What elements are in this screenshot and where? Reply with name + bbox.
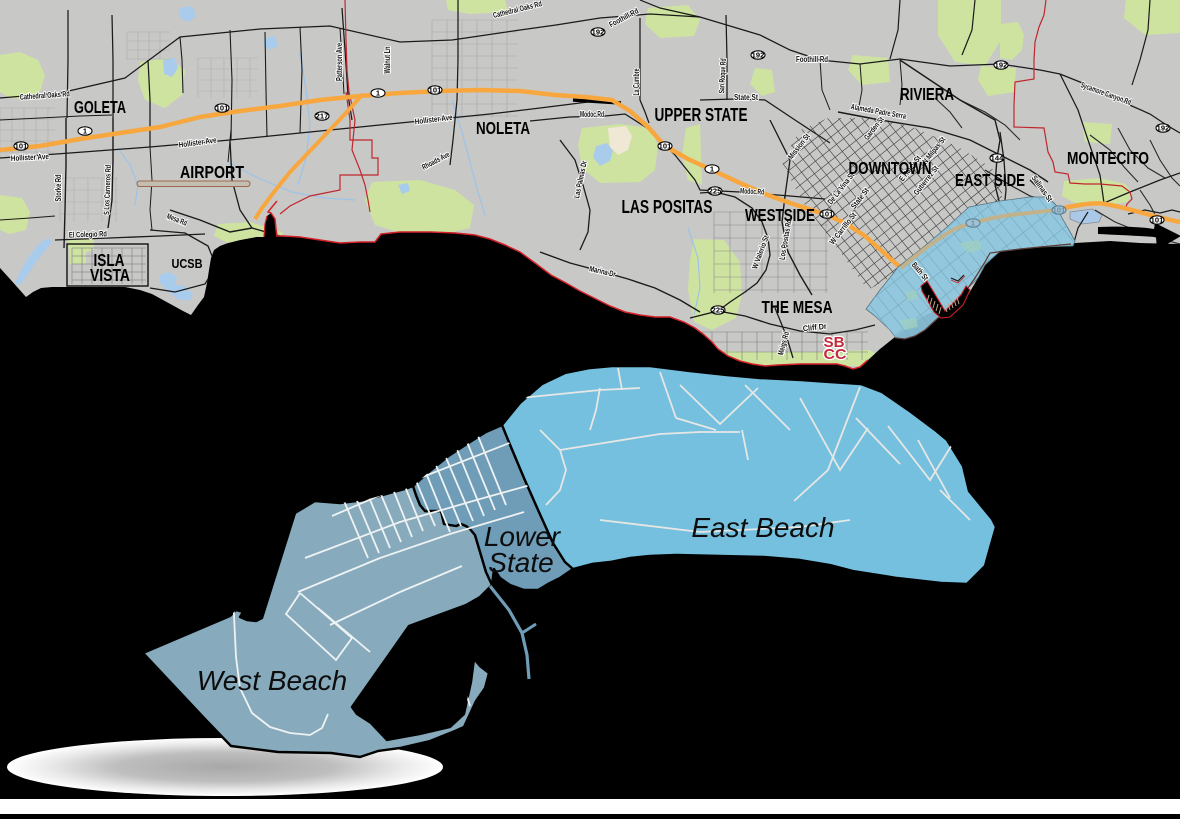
svg-text:192: 192 — [592, 30, 605, 37]
svg-text:101: 101 — [659, 144, 672, 151]
svg-text:WESTSIDE: WESTSIDE — [745, 205, 815, 225]
svg-text:1: 1 — [376, 91, 380, 98]
svg-text:La Cumbre: La Cumbre — [632, 68, 641, 95]
svg-text:THE MESA: THE MESA — [762, 297, 833, 317]
svg-text:192: 192 — [752, 53, 765, 60]
svg-text:101: 101 — [429, 88, 442, 95]
svg-text:EAST SIDE: EAST SIDE — [955, 170, 1025, 190]
svg-text:RIVIERA: RIVIERA — [900, 84, 954, 104]
svg-text:East Beach: East Beach — [691, 512, 834, 543]
svg-text:Walnut Ln: Walnut Ln — [383, 46, 392, 73]
svg-text:Modoc Rd: Modoc Rd — [580, 110, 604, 119]
svg-text:144: 144 — [991, 156, 1004, 163]
svg-text:1: 1 — [83, 129, 87, 136]
svg-text:CC: CC — [824, 346, 847, 363]
svg-text:Foothill Rd: Foothill Rd — [796, 55, 828, 64]
svg-text:101: 101 — [1053, 208, 1066, 215]
svg-text:NOLETA: NOLETA — [476, 118, 530, 138]
svg-text:225: 225 — [712, 308, 725, 315]
svg-text:101: 101 — [1151, 218, 1164, 225]
svg-text:S Los Carneros Rd: S Los Carneros Rd — [102, 165, 113, 215]
svg-text:LAS POSITAS: LAS POSITAS — [622, 196, 713, 217]
svg-text:DOWNTOWN: DOWNTOWN — [849, 158, 932, 178]
svg-text:State: State — [488, 547, 553, 578]
svg-text:192: 192 — [1157, 126, 1170, 133]
svg-text:1: 1 — [710, 167, 714, 174]
svg-text:Storke Rd: Storke Rd — [54, 174, 63, 201]
svg-text:101: 101 — [15, 144, 28, 151]
svg-text:217: 217 — [316, 114, 329, 121]
svg-text:192: 192 — [995, 63, 1008, 70]
svg-text:VISTA: VISTA — [90, 265, 130, 285]
svg-text:101: 101 — [821, 212, 834, 219]
svg-text:225: 225 — [709, 189, 722, 196]
svg-text:El Colegio Rd: El Colegio Rd — [69, 229, 107, 239]
svg-text:101: 101 — [216, 106, 229, 113]
svg-text:1: 1 — [971, 221, 975, 228]
svg-text:San Roque Rd: San Roque Rd — [717, 58, 728, 93]
svg-text:Patterson Ave: Patterson Ave — [335, 43, 344, 81]
svg-text:MONTECITO: MONTECITO — [1067, 148, 1149, 168]
svg-text:UPPER STATE: UPPER STATE — [655, 104, 748, 125]
svg-text:State St: State St — [734, 93, 758, 102]
svg-text:GOLETA: GOLETA — [74, 97, 126, 117]
svg-text:UCSB: UCSB — [172, 256, 203, 271]
svg-text:Modoc Rd: Modoc Rd — [740, 186, 765, 196]
svg-text:West Beach: West Beach — [197, 665, 347, 696]
svg-text:AIRPORT: AIRPORT — [180, 162, 244, 182]
